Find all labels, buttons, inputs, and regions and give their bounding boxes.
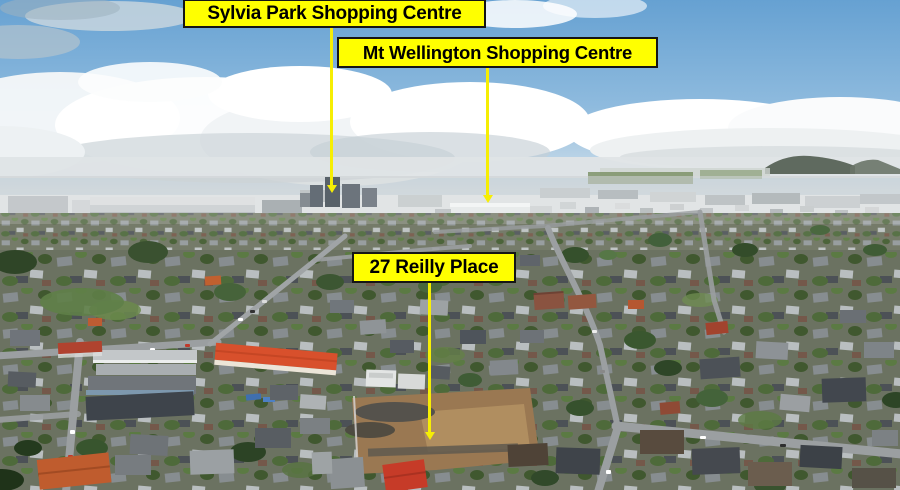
pointer-arrow-reilly-place xyxy=(425,432,435,440)
motel-complex xyxy=(85,350,197,421)
pointer-line-reilly-place xyxy=(428,281,431,433)
aerial-photo: Sylvia Park Shopping Centre Mt Wellingto… xyxy=(0,0,900,490)
pointer-line-sylvia-park xyxy=(330,26,333,186)
aerial-photo-background xyxy=(0,0,900,490)
callout-label-sylvia-park: Sylvia Park Shopping Centre xyxy=(183,0,486,28)
pointer-arrow-sylvia-park xyxy=(327,185,337,193)
callout-label-reilly-place: 27 Reilly Place xyxy=(352,252,516,283)
pointer-arrow-mt-wellington xyxy=(483,195,493,203)
pointer-line-mt-wellington xyxy=(486,66,489,196)
callout-label-mt-wellington: Mt Wellington Shopping Centre xyxy=(337,37,658,68)
